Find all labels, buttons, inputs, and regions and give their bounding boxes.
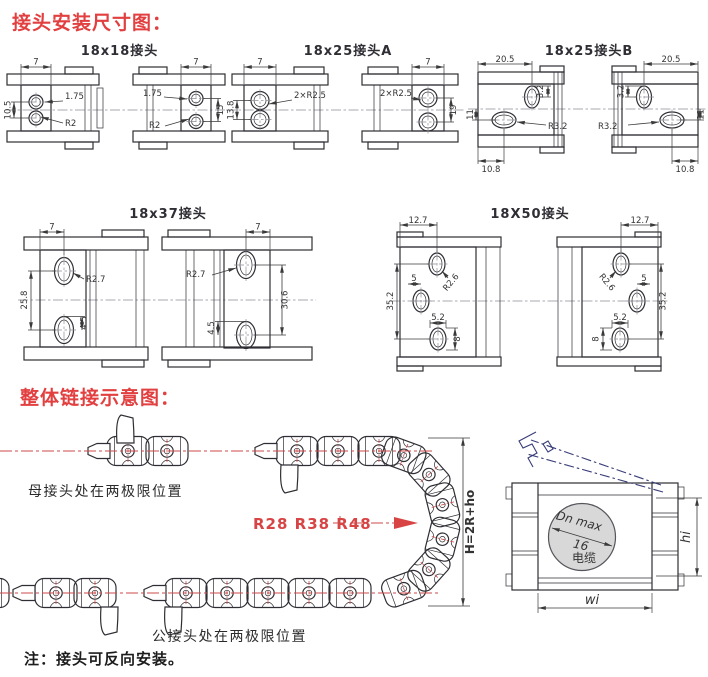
dim-18x18-lv-offset: 1.75 [65, 92, 84, 102]
diagram-title-18x50: 18X50接头 [390, 203, 670, 221]
bend-height-label: H=2R+ho [463, 490, 477, 555]
diagram-title-18x37: 18x37接头 [18, 203, 318, 221]
dim-18x25a-rv-pitch: 19 [449, 105, 459, 116]
bend-radius-label: R28 R38 R48 [253, 515, 372, 533]
section-title-dimensions: 接头安装尺寸图： [12, 8, 172, 35]
dim-18x50-lv-small: 5 [411, 274, 416, 284]
dim-18x25b-lv-slot: 3.2 [536, 85, 546, 99]
dim-18x18-rv-width: 7 [193, 58, 198, 68]
dim-18x18-lv-radius: R2 [65, 119, 76, 129]
dim-18x18-rv-offset: 1.75 [143, 89, 162, 99]
reverse-install-note: 注：接头可反向安装。 [24, 648, 184, 669]
diagram-18x50-drawing: 12.7 R2.6 5 35.2 5.2 8 12.7 R2.6 5 [390, 221, 670, 379]
dim-18x50-rv-radius: R2.6 [596, 272, 616, 293]
dim-18x37-lv-width: 7 [49, 223, 54, 233]
dim-18x37-lv-slot: 4.5 [80, 316, 90, 330]
page: 接头安装尺寸图： 18x18接头 7 10.5 1.75 R2 [0, 0, 708, 677]
dim-18x50-lv-slot-w: 5.2 [431, 313, 445, 323]
diagram-18x18: 18x18接头 7 10.5 1.75 R2 [7, 40, 232, 176]
inner-width-label: wi [585, 593, 600, 608]
male-connector-label: 公接头处在两极限位置 [152, 628, 307, 645]
dim-18x25b-lv-pitch: 11 [466, 109, 476, 120]
dim-18x25a-rv-radius: 2×R2.5 [380, 89, 412, 99]
dim-18x50-lv-pitch: 35.2 [386, 292, 396, 311]
dim-18x50-lv-width: 12.7 [409, 216, 428, 226]
diagram-18x25b: 18x25接头B 20.5 3.2 11 R3.2 10. [470, 40, 708, 176]
dim-18x25a-lv-width: 7 [257, 58, 262, 68]
dim-18x50-rv-slot-w: 5.2 [613, 313, 627, 323]
dim-18x37-rv-slot: 4.5 [207, 321, 217, 335]
inner-height-label: hi [679, 531, 694, 543]
dim-18x37-lv-pitch: 25.8 [20, 291, 30, 310]
dim-18x25b-lv-radius: R3.2 [548, 122, 567, 132]
dim-18x37-rv-width: 7 [255, 223, 260, 233]
diagram-18x37-drawing: 7 R2.7 25.8 4.5 7 R2.7 30.6 [18, 221, 318, 379]
dim-18x18-rv-pitch: 15 [216, 105, 226, 116]
dim-18x37-rv-pitch: 30.6 [281, 291, 291, 310]
dim-18x50-lv-radius: R2.6 [441, 272, 461, 293]
female-connector-label: 母接头处在两极限位置 [28, 483, 183, 500]
diagram-title-18x25a: 18x25接头A [228, 40, 468, 58]
dim-18x18-lv-width: 7 [33, 58, 38, 68]
dim-18x25a-lv-pitch: 13.8 [227, 101, 237, 120]
dim-18x25b-lv-bottom: 10.8 [482, 165, 501, 175]
section-title-assembly: 整体链接示意图： [20, 383, 180, 410]
dim-18x37-lv-radius: R2.7 [86, 275, 105, 285]
dim-18x25b-rv-radius: R3.2 [598, 122, 617, 132]
dim-18x50-rv-width: 12.7 [631, 216, 650, 226]
bend-radius-arrow [394, 517, 418, 529]
dim-18x50-lv-slot-h: 8 [453, 336, 463, 341]
diagram-18x25b-drawing: 20.5 3.2 11 R3.2 10.8 20.5 3.2 11 R3.2 [470, 58, 708, 176]
dim-18x25b-rv-pitch: 11 [697, 109, 707, 120]
dim-18x25b-rv-bottom: 10.8 [676, 165, 695, 175]
diagram-18x37: 18x37接头 7 R2.7 25.8 4.5 [18, 203, 318, 379]
cable-word: 电缆 [572, 551, 596, 565]
dim-18x25b-rv-slot: 3.2 [617, 85, 627, 99]
diagram-18x25a: 18x25接头A 7 13.8 2×R2.5 7 [228, 40, 468, 176]
diagram-18x25a-drawing: 7 13.8 2×R2.5 7 2×R2.5 19 [228, 58, 468, 176]
dim-18x50-rv-small: 5 [641, 274, 646, 284]
dim-18x50-rv-slot-h: 8 [592, 336, 602, 341]
dim-18x25b-rv-width: 20.5 [662, 55, 681, 65]
open-cover-profile [519, 432, 537, 467]
dim-18x18-lv-pitch: 10.5 [4, 101, 14, 120]
dim-18x50-rv-pitch: 35.2 [659, 292, 669, 311]
dim-18x25a-lv-radius: 2×R2.5 [294, 91, 326, 101]
dim-18x18-rv-radius: R2 [149, 121, 160, 131]
dim-18x25b-lv-width: 20.5 [496, 55, 515, 65]
assembly-drawing: 母接头处在两极限位置 公接头处在两极限位置 R28 R38 R48 H=2R+h… [0, 413, 708, 665]
diagram-18x50: 18X50接头 12.7 R2.6 5 35.2 5.2 [390, 203, 670, 379]
dim-18x37-rv-radius: R2.7 [186, 270, 205, 280]
dim-18x25a-rv-width: 7 [425, 58, 430, 68]
diagram-18x18-drawing: 7 10.5 1.75 R2 7 1.75 15 R2 [7, 58, 232, 176]
diagram-title-18x18: 18x18接头 [7, 40, 232, 58]
